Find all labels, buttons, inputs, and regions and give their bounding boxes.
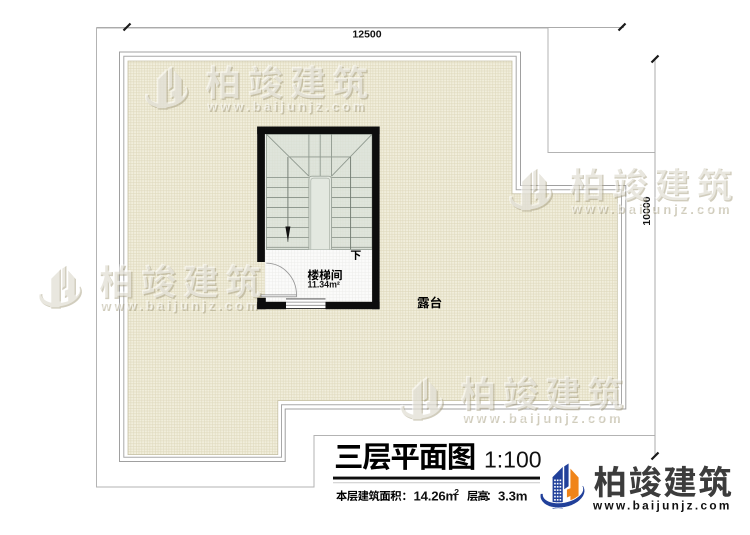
svg-text:1:100: 1:100 bbox=[484, 447, 542, 473]
svg-text:www.baijunjz.com: www.baijunjz.com bbox=[206, 99, 367, 114]
svg-text:14.26m: 14.26m bbox=[414, 488, 458, 503]
svg-text:12500: 12500 bbox=[352, 29, 381, 41]
svg-text:3.3m: 3.3m bbox=[498, 488, 527, 503]
svg-text:11.34m²: 11.34m² bbox=[308, 279, 340, 289]
svg-text:2: 2 bbox=[454, 487, 459, 497]
svg-text:www.baijunjz.com: www.baijunjz.com bbox=[99, 298, 260, 313]
svg-text:www.baijunjz.com: www.baijunjz.com bbox=[592, 499, 732, 513]
svg-text:www.baijunjz.com: www.baijunjz.com bbox=[570, 201, 731, 216]
svg-text:www.baijunjz.com: www.baijunjz.com bbox=[461, 410, 622, 425]
